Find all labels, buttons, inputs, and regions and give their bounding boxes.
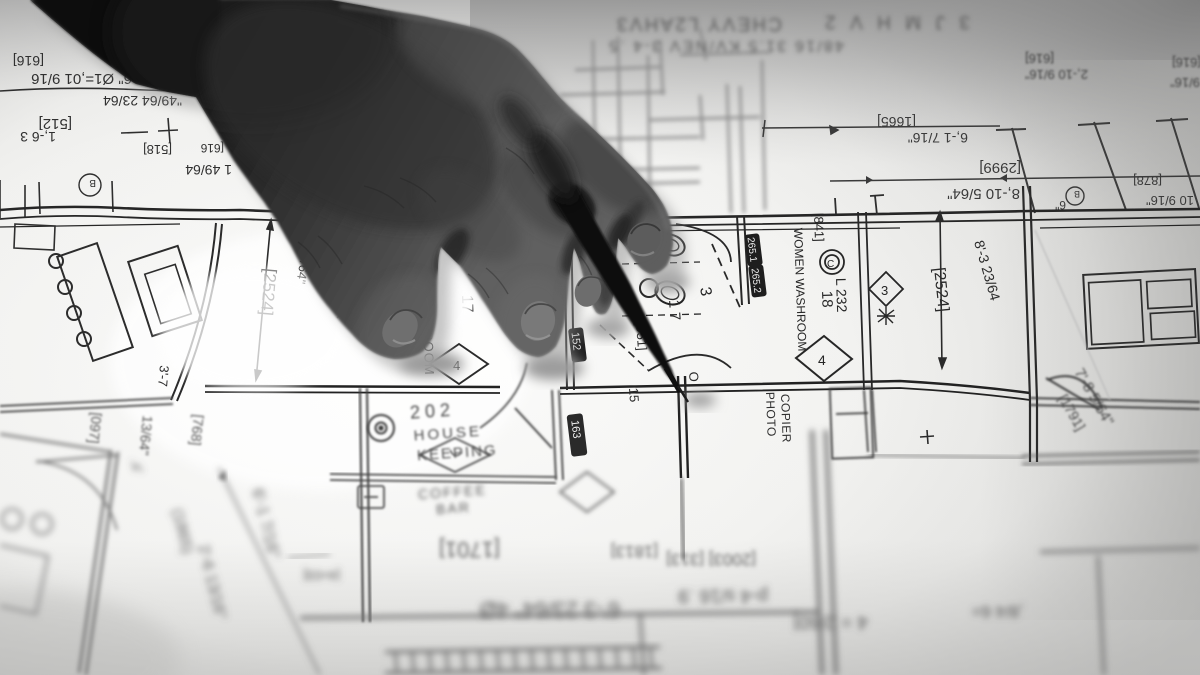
svg-text:18: 18 bbox=[818, 291, 836, 308]
svg-text:6,-1 7/16": 6,-1 7/16" bbox=[908, 130, 968, 146]
svg-text:[616: [616 bbox=[200, 141, 224, 155]
svg-text:[097]: [097] bbox=[86, 412, 105, 445]
svg-text:[841]: [841] bbox=[811, 213, 827, 242]
svg-text:1,-6 3: 1,-6 3 bbox=[20, 129, 56, 145]
svg-text:3: 3 bbox=[881, 283, 888, 298]
svg-text:BAR: BAR bbox=[435, 499, 471, 517]
svg-text:O: O bbox=[686, 371, 702, 382]
svg-text:4: 4 bbox=[818, 352, 826, 368]
svg-text:15: 15 bbox=[626, 387, 642, 402]
svg-text:3'-7: 3'-7 bbox=[155, 365, 172, 388]
svg-text:8,-10 5/64": 8,-10 5/64" bbox=[947, 185, 1020, 202]
svg-text:[616]: [616] bbox=[1025, 51, 1054, 66]
svg-text:CHEVY L2AHV3: CHEVY L2AHV3 bbox=[617, 13, 782, 34]
svg-text:[768]: [768] bbox=[188, 414, 207, 447]
svg-text:C: C bbox=[827, 259, 834, 270]
svg-text:1 49/64: 1 49/64 bbox=[185, 162, 232, 178]
svg-text:[878]: [878] bbox=[1133, 173, 1162, 188]
svg-text:9/16": 9/16" bbox=[1170, 75, 1200, 90]
svg-text:COPIER: COPIER bbox=[778, 394, 794, 443]
svg-text:6'-3 23/64" 4Ø: 6'-3 23/64" 4Ø bbox=[480, 597, 620, 622]
svg-text:[1701]: [1701] bbox=[439, 537, 500, 562]
svg-text:B: B bbox=[89, 177, 96, 188]
svg-text:2,-10 9/16": 2,-10 9/16" bbox=[1024, 67, 1088, 82]
svg-text:[2999]: [2999] bbox=[979, 159, 1021, 176]
svg-text:p-4 s/16 .9: p-4 s/16 .9 bbox=[678, 585, 768, 606]
svg-text:[616]: [616] bbox=[13, 53, 44, 69]
svg-text:,8/4 6=: ,8/4 6= bbox=[971, 602, 1024, 621]
svg-text:[2003] [313]: [2003] [313] bbox=[666, 550, 756, 569]
svg-text:163: 163 bbox=[568, 420, 582, 440]
svg-text:[616]: [616] bbox=[1172, 55, 1200, 70]
svg-text:PHOTO: PHOTO bbox=[763, 392, 779, 437]
svg-text:10 9/16": 10 9/16" bbox=[1146, 193, 1194, 208]
svg-text:[1813]: [1813] bbox=[611, 542, 658, 561]
svg-text:4 = 2/60]: 4 = 2/60] bbox=[794, 611, 868, 632]
svg-text:B: B bbox=[1074, 189, 1080, 199]
svg-text:[518]: [518] bbox=[143, 142, 172, 157]
svg-text:[4=03]: [4=03] bbox=[303, 568, 340, 583]
svg-text:202: 202 bbox=[409, 400, 455, 423]
